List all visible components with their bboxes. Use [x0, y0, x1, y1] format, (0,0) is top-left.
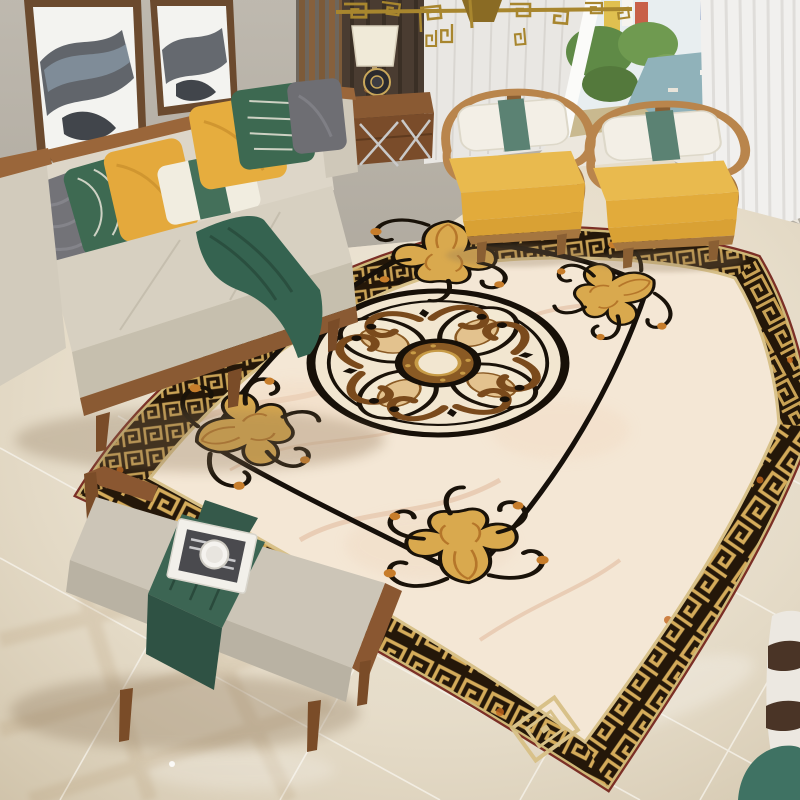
- stool-body: [766, 611, 800, 766]
- stool-band-top: [768, 641, 800, 671]
- pillow-gray-2: [286, 77, 347, 154]
- painting-right: [150, 0, 238, 116]
- living-room-photo: Living room scene: beige fabric sofa wit…: [0, 0, 800, 800]
- scene-canvas: [0, 0, 800, 800]
- lamp-shade: [352, 26, 398, 66]
- ceramic-stool: [766, 611, 800, 766]
- stool-band-bottom: [766, 701, 800, 731]
- decor-disc: [364, 69, 390, 95]
